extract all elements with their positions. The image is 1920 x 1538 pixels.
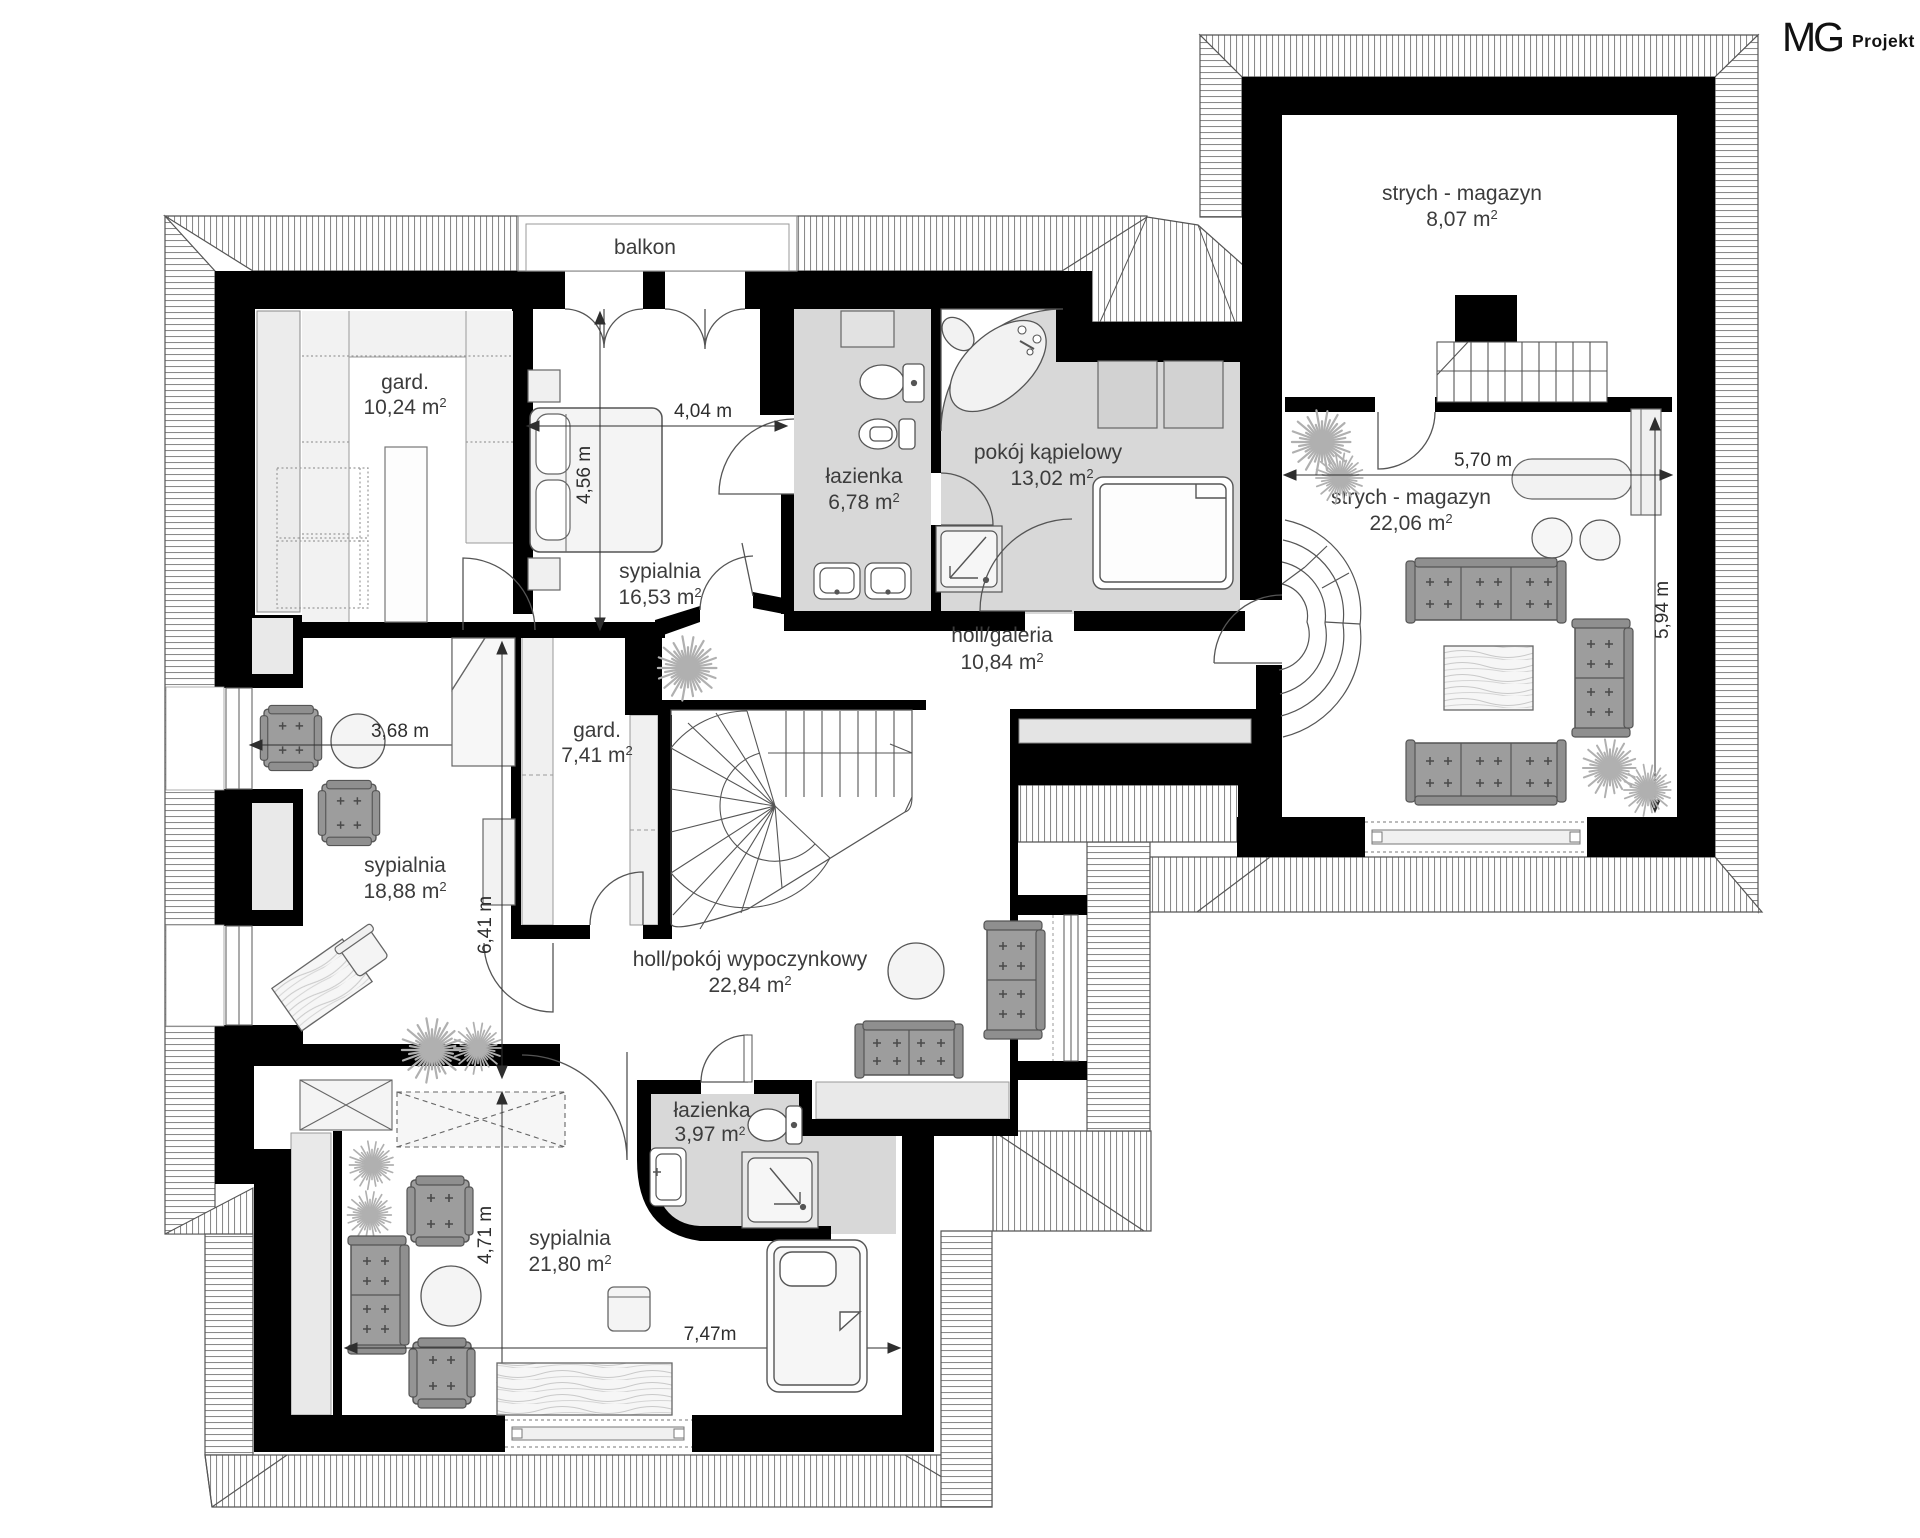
- svg-text:pokój kąpielowy: pokój kąpielowy: [974, 441, 1123, 464]
- svg-text:8,07 m2: 8,07 m2: [1426, 207, 1497, 231]
- svg-text:holl/galeria: holl/galeria: [951, 624, 1053, 647]
- svg-text:7,41 m2: 7,41 m2: [561, 743, 632, 767]
- svg-text:strych - magazyn: strych - magazyn: [1382, 182, 1542, 205]
- svg-text:5,70 m: 5,70 m: [1454, 450, 1512, 471]
- svg-text:holl/pokój wypoczynkowy: holl/pokój wypoczynkowy: [633, 948, 868, 971]
- svg-text:16,53 m2: 16,53 m2: [618, 585, 701, 609]
- svg-text:5,94 m: 5,94 m: [1652, 581, 1673, 639]
- svg-text:strych - magazyn: strych - magazyn: [1331, 486, 1491, 509]
- svg-text:balkon: balkon: [614, 236, 676, 259]
- svg-text:22,06 m2: 22,06 m2: [1369, 511, 1452, 535]
- svg-text:6,41 m: 6,41 m: [475, 896, 496, 954]
- svg-text:gard.: gard.: [573, 719, 621, 742]
- svg-text:3,97 m2: 3,97 m2: [675, 1123, 746, 1146]
- svg-text:10,84 m2: 10,84 m2: [960, 650, 1043, 674]
- svg-text:18,88 m2: 18,88 m2: [363, 879, 446, 903]
- svg-text:4,04 m: 4,04 m: [674, 401, 732, 422]
- svg-text:łazienka: łazienka: [825, 465, 902, 488]
- svg-text:łazienka: łazienka: [673, 1099, 750, 1122]
- svg-text:4,71 m: 4,71 m: [475, 1206, 496, 1264]
- svg-text:sypialnia: sypialnia: [619, 560, 701, 583]
- svg-text:sypialnia: sypialnia: [364, 854, 446, 877]
- svg-text:gard.: gard.: [381, 371, 429, 394]
- svg-text:22,84 m2: 22,84 m2: [708, 973, 791, 997]
- svg-text:6,78 m2: 6,78 m2: [828, 490, 899, 514]
- svg-text:7,47m: 7,47m: [684, 1324, 737, 1345]
- svg-text:4,56 m: 4,56 m: [574, 446, 595, 504]
- svg-text:13,02 m2: 13,02 m2: [1010, 466, 1093, 490]
- svg-text:Projekt: Projekt: [1852, 31, 1915, 51]
- svg-text:MG: MG: [1782, 14, 1842, 60]
- svg-text:21,80 m2: 21,80 m2: [528, 1252, 611, 1276]
- svg-text:10,24 m2: 10,24 m2: [363, 395, 446, 419]
- svg-text:3,68 m: 3,68 m: [371, 721, 429, 742]
- svg-text:sypialnia: sypialnia: [529, 1227, 611, 1250]
